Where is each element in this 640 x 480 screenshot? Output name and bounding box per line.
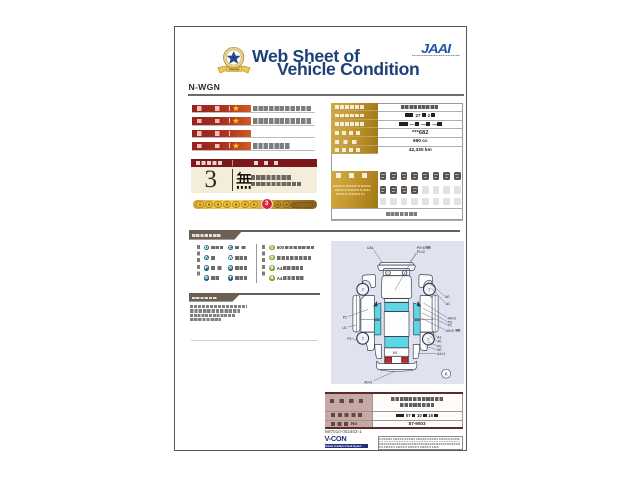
svg-text:P1×2: P1×2: [417, 250, 425, 254]
svg-text:P2: P2: [343, 315, 347, 319]
svg-text:K: K: [445, 371, 448, 376]
svg-text:A0×2: A0×2: [364, 380, 372, 384]
svg-text:A1×2: A1×2: [437, 352, 445, 356]
svg-text:2: 2: [428, 287, 430, 291]
svg-text:A0: A0: [445, 295, 449, 299]
svg-text:A0×5: A0×5: [446, 329, 454, 333]
svg-text:W1: W1: [393, 351, 398, 355]
svg-text:A1: A1: [446, 302, 450, 306]
svg-text:UA1: UA1: [367, 246, 374, 250]
svg-text:2: 2: [427, 337, 429, 341]
svg-text:P2: P2: [448, 323, 452, 327]
svg-text:A0: A0: [437, 339, 441, 343]
svg-text:2: 2: [362, 287, 364, 291]
svg-text:U1: U1: [342, 326, 346, 330]
svg-text:P3: P3: [347, 337, 351, 341]
svg-text:2: 2: [362, 336, 364, 340]
